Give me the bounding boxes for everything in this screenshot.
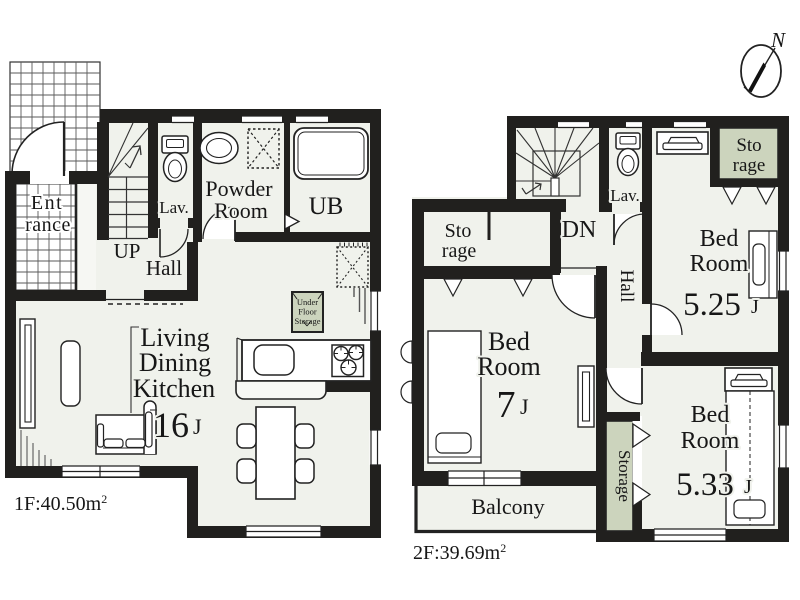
svg-text:2F:39.69m2: 2F:39.69m2 [413, 541, 506, 564]
svg-text:Bed: Bed [691, 402, 730, 428]
svg-text:Hall: Hall [146, 256, 182, 280]
svg-text:Under: Under [297, 297, 318, 307]
svg-text:Room: Room [214, 198, 268, 223]
svg-text:rage: rage [733, 155, 766, 176]
svg-text:Room: Room [477, 352, 541, 381]
svg-text:Lav.: Lav. [159, 198, 189, 217]
svg-text:5.25: 5.25 [683, 287, 741, 323]
svg-text:Sto: Sto [736, 135, 761, 156]
svg-text:Balcony: Balcony [471, 494, 544, 519]
svg-text:5.33: 5.33 [676, 467, 734, 503]
svg-text:UB: UB [309, 193, 344, 220]
svg-text:UP: UP [114, 239, 141, 263]
svg-text:16: 16 [153, 405, 189, 445]
svg-text:Sto: Sto [445, 220, 472, 242]
svg-text:Kitchen: Kitchen [133, 374, 215, 403]
svg-text:Floor: Floor [298, 307, 317, 317]
svg-text:Bed: Bed [700, 226, 739, 252]
svg-text:DN: DN [562, 217, 597, 243]
svg-text:N: N [770, 28, 786, 52]
svg-text:Room: Room [681, 428, 740, 454]
svg-text:J: J [193, 414, 202, 439]
svg-text:J: J [751, 296, 759, 318]
svg-text:rance: rance [25, 214, 71, 236]
svg-text:Room: Room [690, 251, 749, 277]
svg-text:1F:40.50m2: 1F:40.50m2 [14, 492, 107, 515]
svg-text:Ent: Ent [31, 192, 63, 214]
svg-text:J: J [744, 476, 752, 498]
svg-text:7: 7 [497, 384, 516, 426]
svg-text:Lav.: Lav. [610, 186, 640, 205]
svg-text:Storage: Storage [615, 450, 634, 502]
svg-text:rage: rage [442, 240, 477, 262]
svg-text:Dining: Dining [139, 348, 211, 377]
svg-text:Hall: Hall [616, 270, 637, 303]
svg-text:J: J [520, 394, 529, 419]
svg-text:Storage: Storage [295, 316, 321, 326]
